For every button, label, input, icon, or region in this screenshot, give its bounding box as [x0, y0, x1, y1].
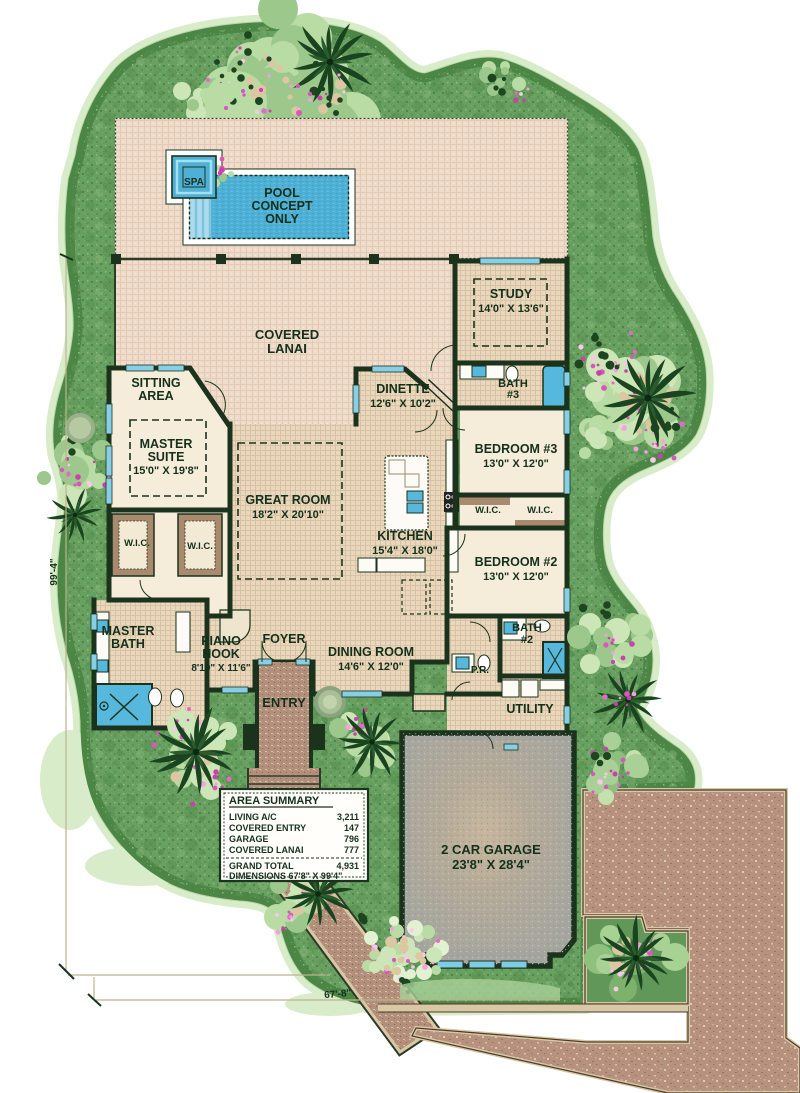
svg-text:12'6" X 10'2": 12'6" X 10'2" [370, 398, 436, 410]
svg-text:SPA: SPA [184, 177, 204, 188]
svg-text:BEDROOM #2: BEDROOM #2 [475, 555, 558, 569]
svg-text:BEDROOM #3: BEDROOM #3 [475, 442, 558, 456]
svg-text:13'0" X 12'0": 13'0" X 12'0" [483, 458, 549, 470]
svg-text:4,931: 4,931 [336, 861, 359, 871]
svg-text:AREA SUMMARY: AREA SUMMARY [229, 795, 320, 807]
svg-text:#2: #2 [521, 634, 533, 646]
svg-text:23'8" X 28'4": 23'8" X 28'4" [452, 857, 530, 872]
svg-text:MASTER: MASTER [140, 437, 193, 451]
svg-text:COVERED: COVERED [255, 327, 319, 342]
svg-text:GARAGE: GARAGE [229, 834, 269, 844]
svg-text:147: 147 [344, 823, 359, 833]
svg-text:GREAT ROOM: GREAT ROOM [245, 493, 330, 507]
svg-text:8'10" X 11'6": 8'10" X 11'6" [191, 663, 251, 674]
svg-text:W.I.C.: W.I.C. [124, 538, 150, 549]
svg-text:POOL: POOL [264, 186, 300, 200]
svg-text:MASTER: MASTER [102, 624, 155, 638]
svg-text:UTILITY: UTILITY [506, 702, 554, 716]
svg-text:DINETTE: DINETTE [376, 382, 429, 396]
svg-text:99'-4": 99'-4" [49, 558, 60, 585]
svg-text:W.I.C.: W.I.C. [527, 505, 553, 516]
svg-text:15'4" X 18'0": 15'4" X 18'0" [372, 545, 438, 557]
svg-text:ENTRY: ENTRY [262, 695, 306, 710]
svg-text:COVERED ENTRY: COVERED ENTRY [229, 823, 306, 833]
svg-text:796: 796 [344, 834, 359, 844]
svg-text:PIANO: PIANO [201, 634, 241, 648]
svg-text:DINING ROOM: DINING ROOM [328, 645, 414, 659]
svg-text:SUITE: SUITE [148, 450, 185, 464]
svg-text:KITCHEN: KITCHEN [377, 529, 433, 543]
svg-text:15'0" X 19'8": 15'0" X 19'8" [133, 465, 199, 477]
svg-text:14'0" X 13'6": 14'0" X 13'6" [478, 303, 544, 315]
svg-text:13'0" X 12'0": 13'0" X 12'0" [483, 571, 549, 583]
svg-text:CONCEPT: CONCEPT [251, 199, 312, 213]
svg-text:2 CAR GARAGE: 2 CAR GARAGE [441, 842, 541, 857]
svg-text:777: 777 [344, 845, 359, 855]
svg-text:3,211: 3,211 [337, 812, 359, 822]
svg-text:LANAI: LANAI [267, 341, 307, 356]
svg-text:#3: #3 [507, 389, 519, 401]
svg-text:18'2" X 20'10": 18'2" X 20'10" [252, 509, 324, 521]
svg-text:COVERED LANAI: COVERED LANAI [229, 845, 304, 855]
svg-text:AREA: AREA [138, 389, 173, 403]
svg-text:BATH: BATH [111, 637, 145, 651]
svg-text:P.R.: P.R. [471, 665, 489, 676]
svg-text:W.I.C.: W.I.C. [475, 505, 501, 516]
svg-text:W.I.C.: W.I.C. [187, 541, 213, 552]
svg-text:GRAND TOTAL: GRAND TOTAL [229, 861, 294, 871]
svg-text:NOOK: NOOK [202, 647, 240, 661]
svg-text:ONLY: ONLY [265, 212, 299, 226]
svg-text:STUDY: STUDY [490, 287, 533, 301]
svg-text:LIVING A/C: LIVING A/C [229, 812, 277, 822]
svg-text:FOYER: FOYER [262, 632, 305, 646]
svg-text:14'6" X 12'0": 14'6" X 12'0" [338, 661, 404, 673]
svg-text:SITTING: SITTING [131, 376, 180, 390]
svg-text:BATH: BATH [512, 622, 542, 634]
svg-text:DIMENSIONS 67'8" X 99'4": DIMENSIONS 67'8" X 99'4" [229, 871, 342, 881]
